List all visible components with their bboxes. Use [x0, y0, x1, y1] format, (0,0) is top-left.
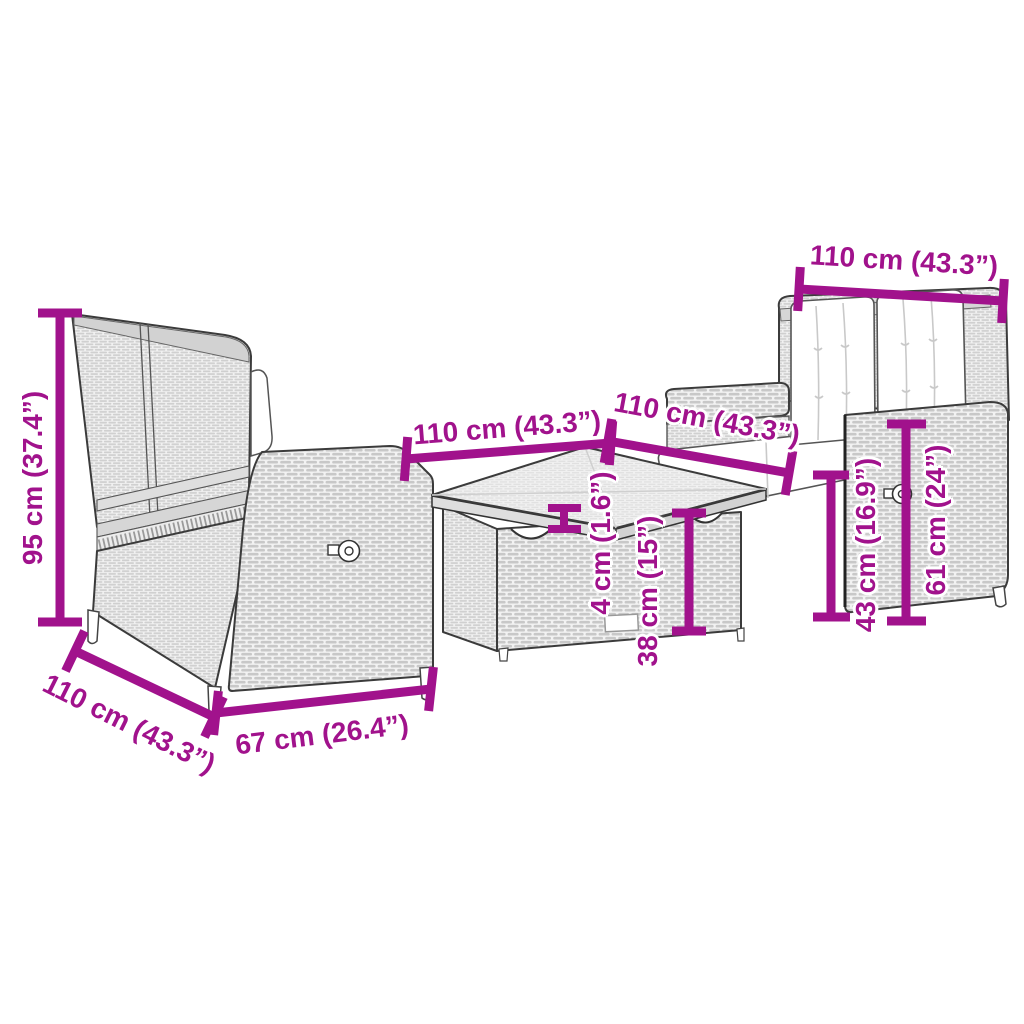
dimension-diagram: 95 cm (37.4”) 110 cm (43.3”) 67 cm (26.4…	[0, 0, 1024, 1024]
sofa-leg	[993, 586, 1006, 607]
dim-bench-height-label: 95 cm (37.4”)	[17, 391, 49, 565]
dim-table-top-thickness-label: 4 cm (1.6”)	[585, 471, 617, 614]
bench-side-panel	[229, 446, 433, 691]
bench-leg	[88, 610, 99, 644]
table-box-left-face	[443, 506, 497, 651]
table-foot	[499, 648, 508, 661]
dim-table-height-label: 38 cm (15”)	[632, 516, 664, 667]
dim-sofa-seatback-height-label: 61 cm (24”)	[920, 445, 952, 596]
bench-left	[72, 314, 433, 714]
dim-sofa-arm-height-label: 43 cm (16.9”)	[850, 458, 882, 632]
table-foot	[737, 628, 744, 641]
bench-cushion-edge	[251, 370, 272, 456]
